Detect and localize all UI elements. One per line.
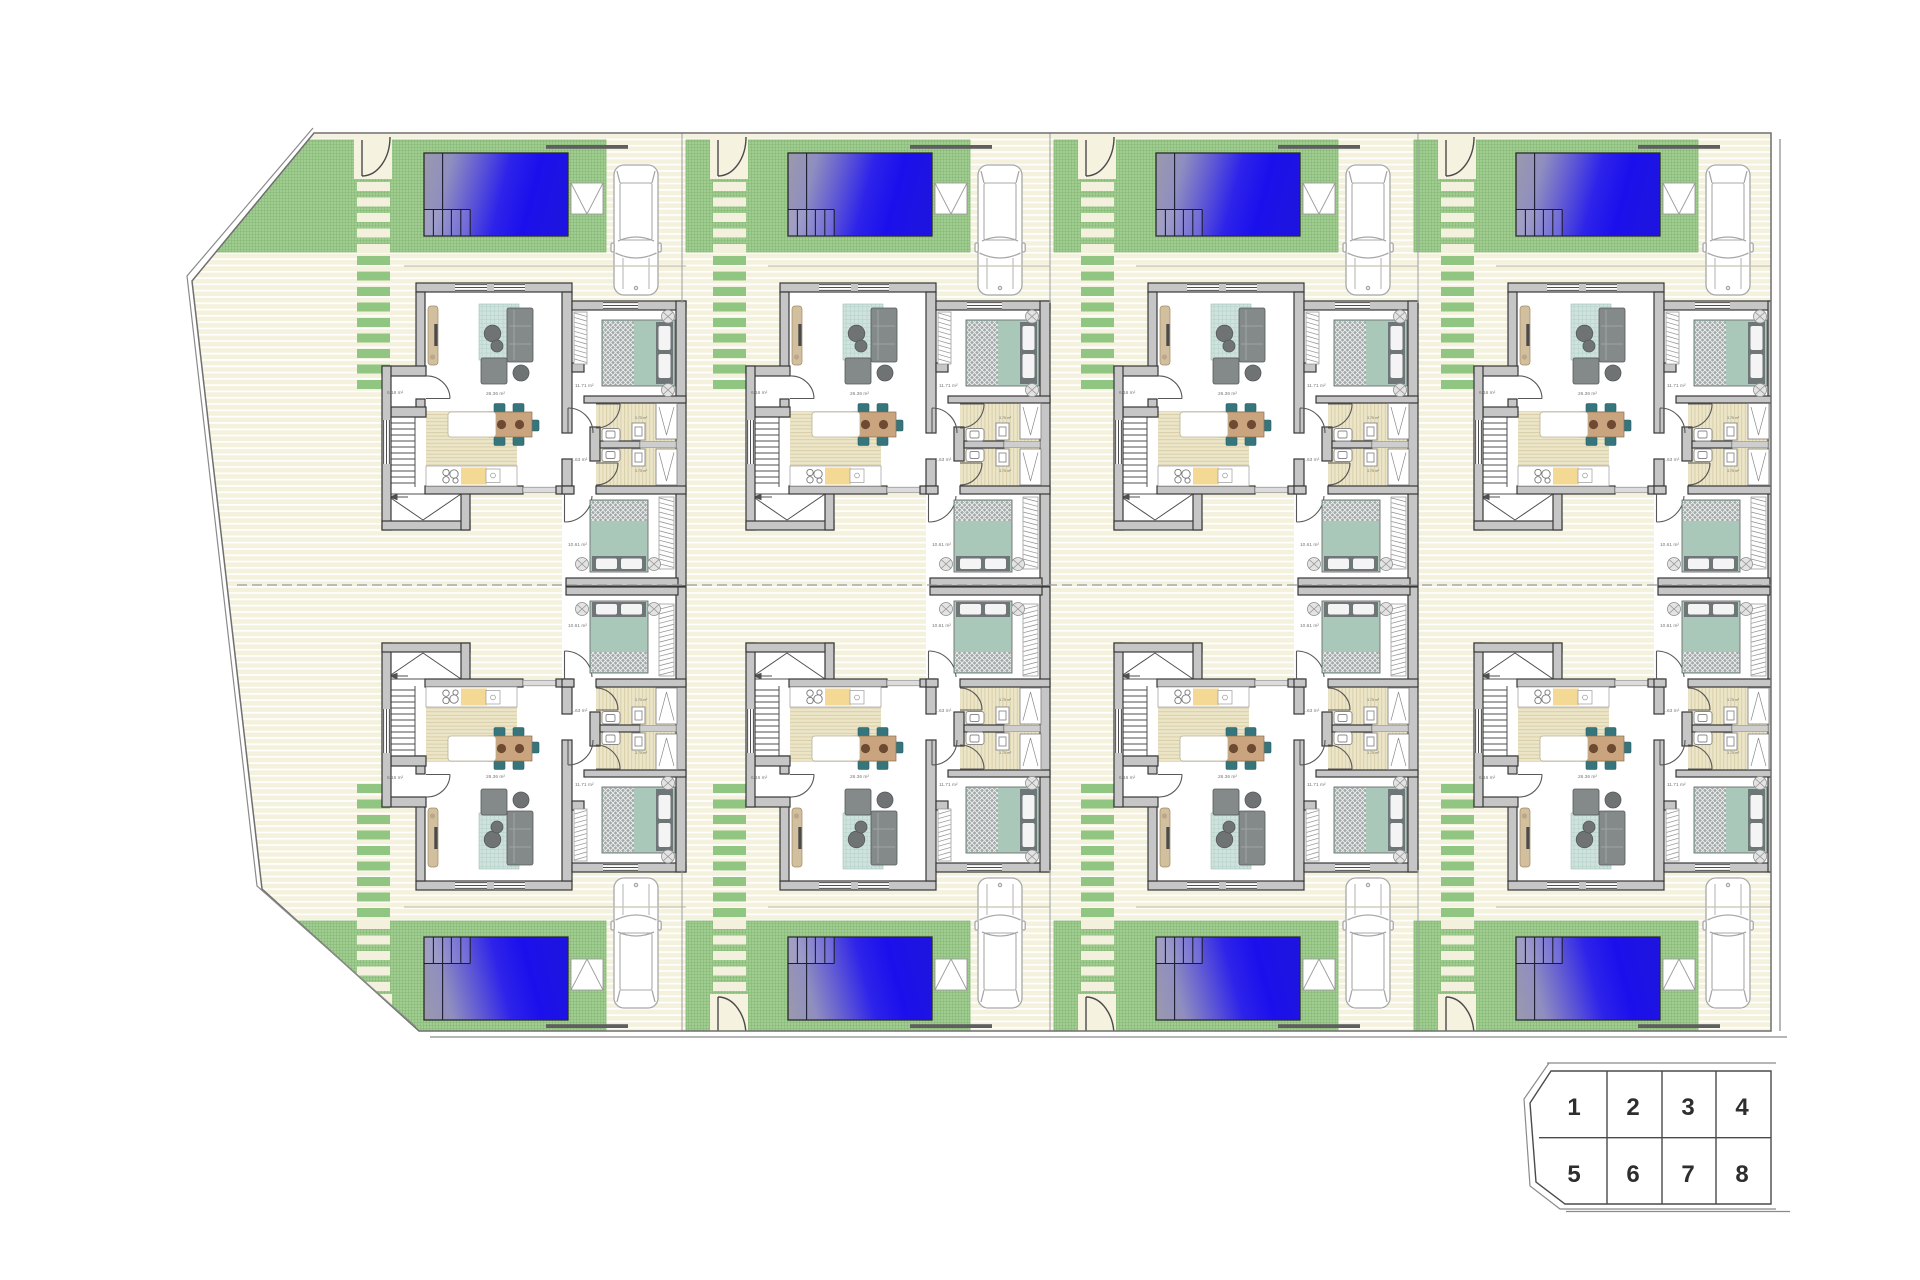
svg-text:1.63 m²: 1.63 m² bbox=[571, 708, 588, 714]
svg-text:7: 7 bbox=[1681, 1161, 1694, 1188]
svg-text:3.75 m²: 3.75 m² bbox=[1367, 416, 1380, 420]
svg-text:26.36 m²: 26.36 m² bbox=[486, 774, 505, 780]
svg-text:10.61 m²: 10.61 m² bbox=[1660, 542, 1679, 548]
svg-text:8: 8 bbox=[1735, 1161, 1748, 1188]
svg-text:11.71 m²: 11.71 m² bbox=[575, 383, 594, 389]
svg-text:3.75 m²: 3.75 m² bbox=[1367, 698, 1380, 702]
svg-text:10.61 m²: 10.61 m² bbox=[1300, 623, 1319, 629]
svg-text:11.71 m²: 11.71 m² bbox=[1667, 782, 1686, 788]
svg-text:4: 4 bbox=[1735, 1094, 1749, 1121]
svg-text:2: 2 bbox=[1626, 1094, 1639, 1121]
svg-text:1.63 m²: 1.63 m² bbox=[935, 457, 952, 463]
svg-text:3.75 m²: 3.75 m² bbox=[1367, 751, 1380, 755]
svg-text:11.71 m²: 11.71 m² bbox=[575, 782, 594, 788]
svg-text:3.75 m²: 3.75 m² bbox=[999, 416, 1012, 420]
svg-text:11.71 m²: 11.71 m² bbox=[939, 782, 958, 788]
svg-text:10.61 m²: 10.61 m² bbox=[932, 623, 951, 629]
svg-text:6.16 m²: 6.16 m² bbox=[1479, 775, 1496, 781]
svg-text:10.61 m²: 10.61 m² bbox=[932, 542, 951, 548]
svg-text:26.36 m²: 26.36 m² bbox=[850, 391, 869, 397]
svg-text:26.36 m²: 26.36 m² bbox=[1578, 774, 1597, 780]
svg-text:26.36 m²: 26.36 m² bbox=[1218, 774, 1237, 780]
svg-text:11.71 m²: 11.71 m² bbox=[1307, 782, 1326, 788]
svg-text:6.16 m²: 6.16 m² bbox=[1119, 775, 1136, 781]
svg-text:3.75 m²: 3.75 m² bbox=[635, 416, 648, 420]
svg-text:1.63 m²: 1.63 m² bbox=[1663, 457, 1680, 463]
svg-text:3.75 m²: 3.75 m² bbox=[999, 698, 1012, 702]
svg-text:6.16 m²: 6.16 m² bbox=[387, 775, 404, 781]
svg-text:11.71 m²: 11.71 m² bbox=[1307, 383, 1326, 389]
svg-text:5: 5 bbox=[1567, 1161, 1580, 1188]
svg-text:3.75 m²: 3.75 m² bbox=[999, 469, 1012, 473]
svg-text:1.63 m²: 1.63 m² bbox=[935, 708, 952, 714]
svg-text:10.61 m²: 10.61 m² bbox=[1660, 623, 1679, 629]
svg-text:3.75 m²: 3.75 m² bbox=[635, 751, 648, 755]
svg-text:11.71 m²: 11.71 m² bbox=[939, 383, 958, 389]
svg-text:3.75 m²: 3.75 m² bbox=[999, 751, 1012, 755]
svg-text:6.16 m²: 6.16 m² bbox=[751, 390, 768, 396]
svg-text:1.63 m²: 1.63 m² bbox=[1303, 708, 1320, 714]
svg-text:1.63 m²: 1.63 m² bbox=[1303, 457, 1320, 463]
svg-text:3.75 m²: 3.75 m² bbox=[1727, 751, 1740, 755]
svg-text:3.75 m²: 3.75 m² bbox=[635, 469, 648, 473]
svg-text:26.36 m²: 26.36 m² bbox=[1578, 391, 1597, 397]
svg-text:26.36 m²: 26.36 m² bbox=[850, 774, 869, 780]
svg-text:6.16 m²: 6.16 m² bbox=[1119, 390, 1136, 396]
svg-text:10.61 m²: 10.61 m² bbox=[568, 542, 587, 548]
svg-text:11.71 m²: 11.71 m² bbox=[1667, 383, 1686, 389]
svg-text:3: 3 bbox=[1681, 1094, 1694, 1121]
svg-text:6.16 m²: 6.16 m² bbox=[1479, 390, 1496, 396]
svg-text:3.75 m²: 3.75 m² bbox=[1727, 416, 1740, 420]
svg-text:6.16 m²: 6.16 m² bbox=[387, 390, 404, 396]
svg-text:3.75 m²: 3.75 m² bbox=[635, 698, 648, 702]
svg-text:10.61 m²: 10.61 m² bbox=[568, 623, 587, 629]
svg-text:6: 6 bbox=[1626, 1161, 1639, 1188]
svg-text:10.61 m²: 10.61 m² bbox=[1300, 542, 1319, 548]
svg-text:6.16 m²: 6.16 m² bbox=[751, 775, 768, 781]
svg-text:1.63 m²: 1.63 m² bbox=[1663, 708, 1680, 714]
svg-text:3.75 m²: 3.75 m² bbox=[1367, 469, 1380, 473]
svg-text:26.36 m²: 26.36 m² bbox=[486, 391, 505, 397]
svg-text:1: 1 bbox=[1567, 1094, 1580, 1121]
svg-text:26.36 m²: 26.36 m² bbox=[1218, 391, 1237, 397]
svg-text:3.75 m²: 3.75 m² bbox=[1727, 698, 1740, 702]
svg-text:1.63 m²: 1.63 m² bbox=[571, 457, 588, 463]
svg-text:3.75 m²: 3.75 m² bbox=[1727, 469, 1740, 473]
